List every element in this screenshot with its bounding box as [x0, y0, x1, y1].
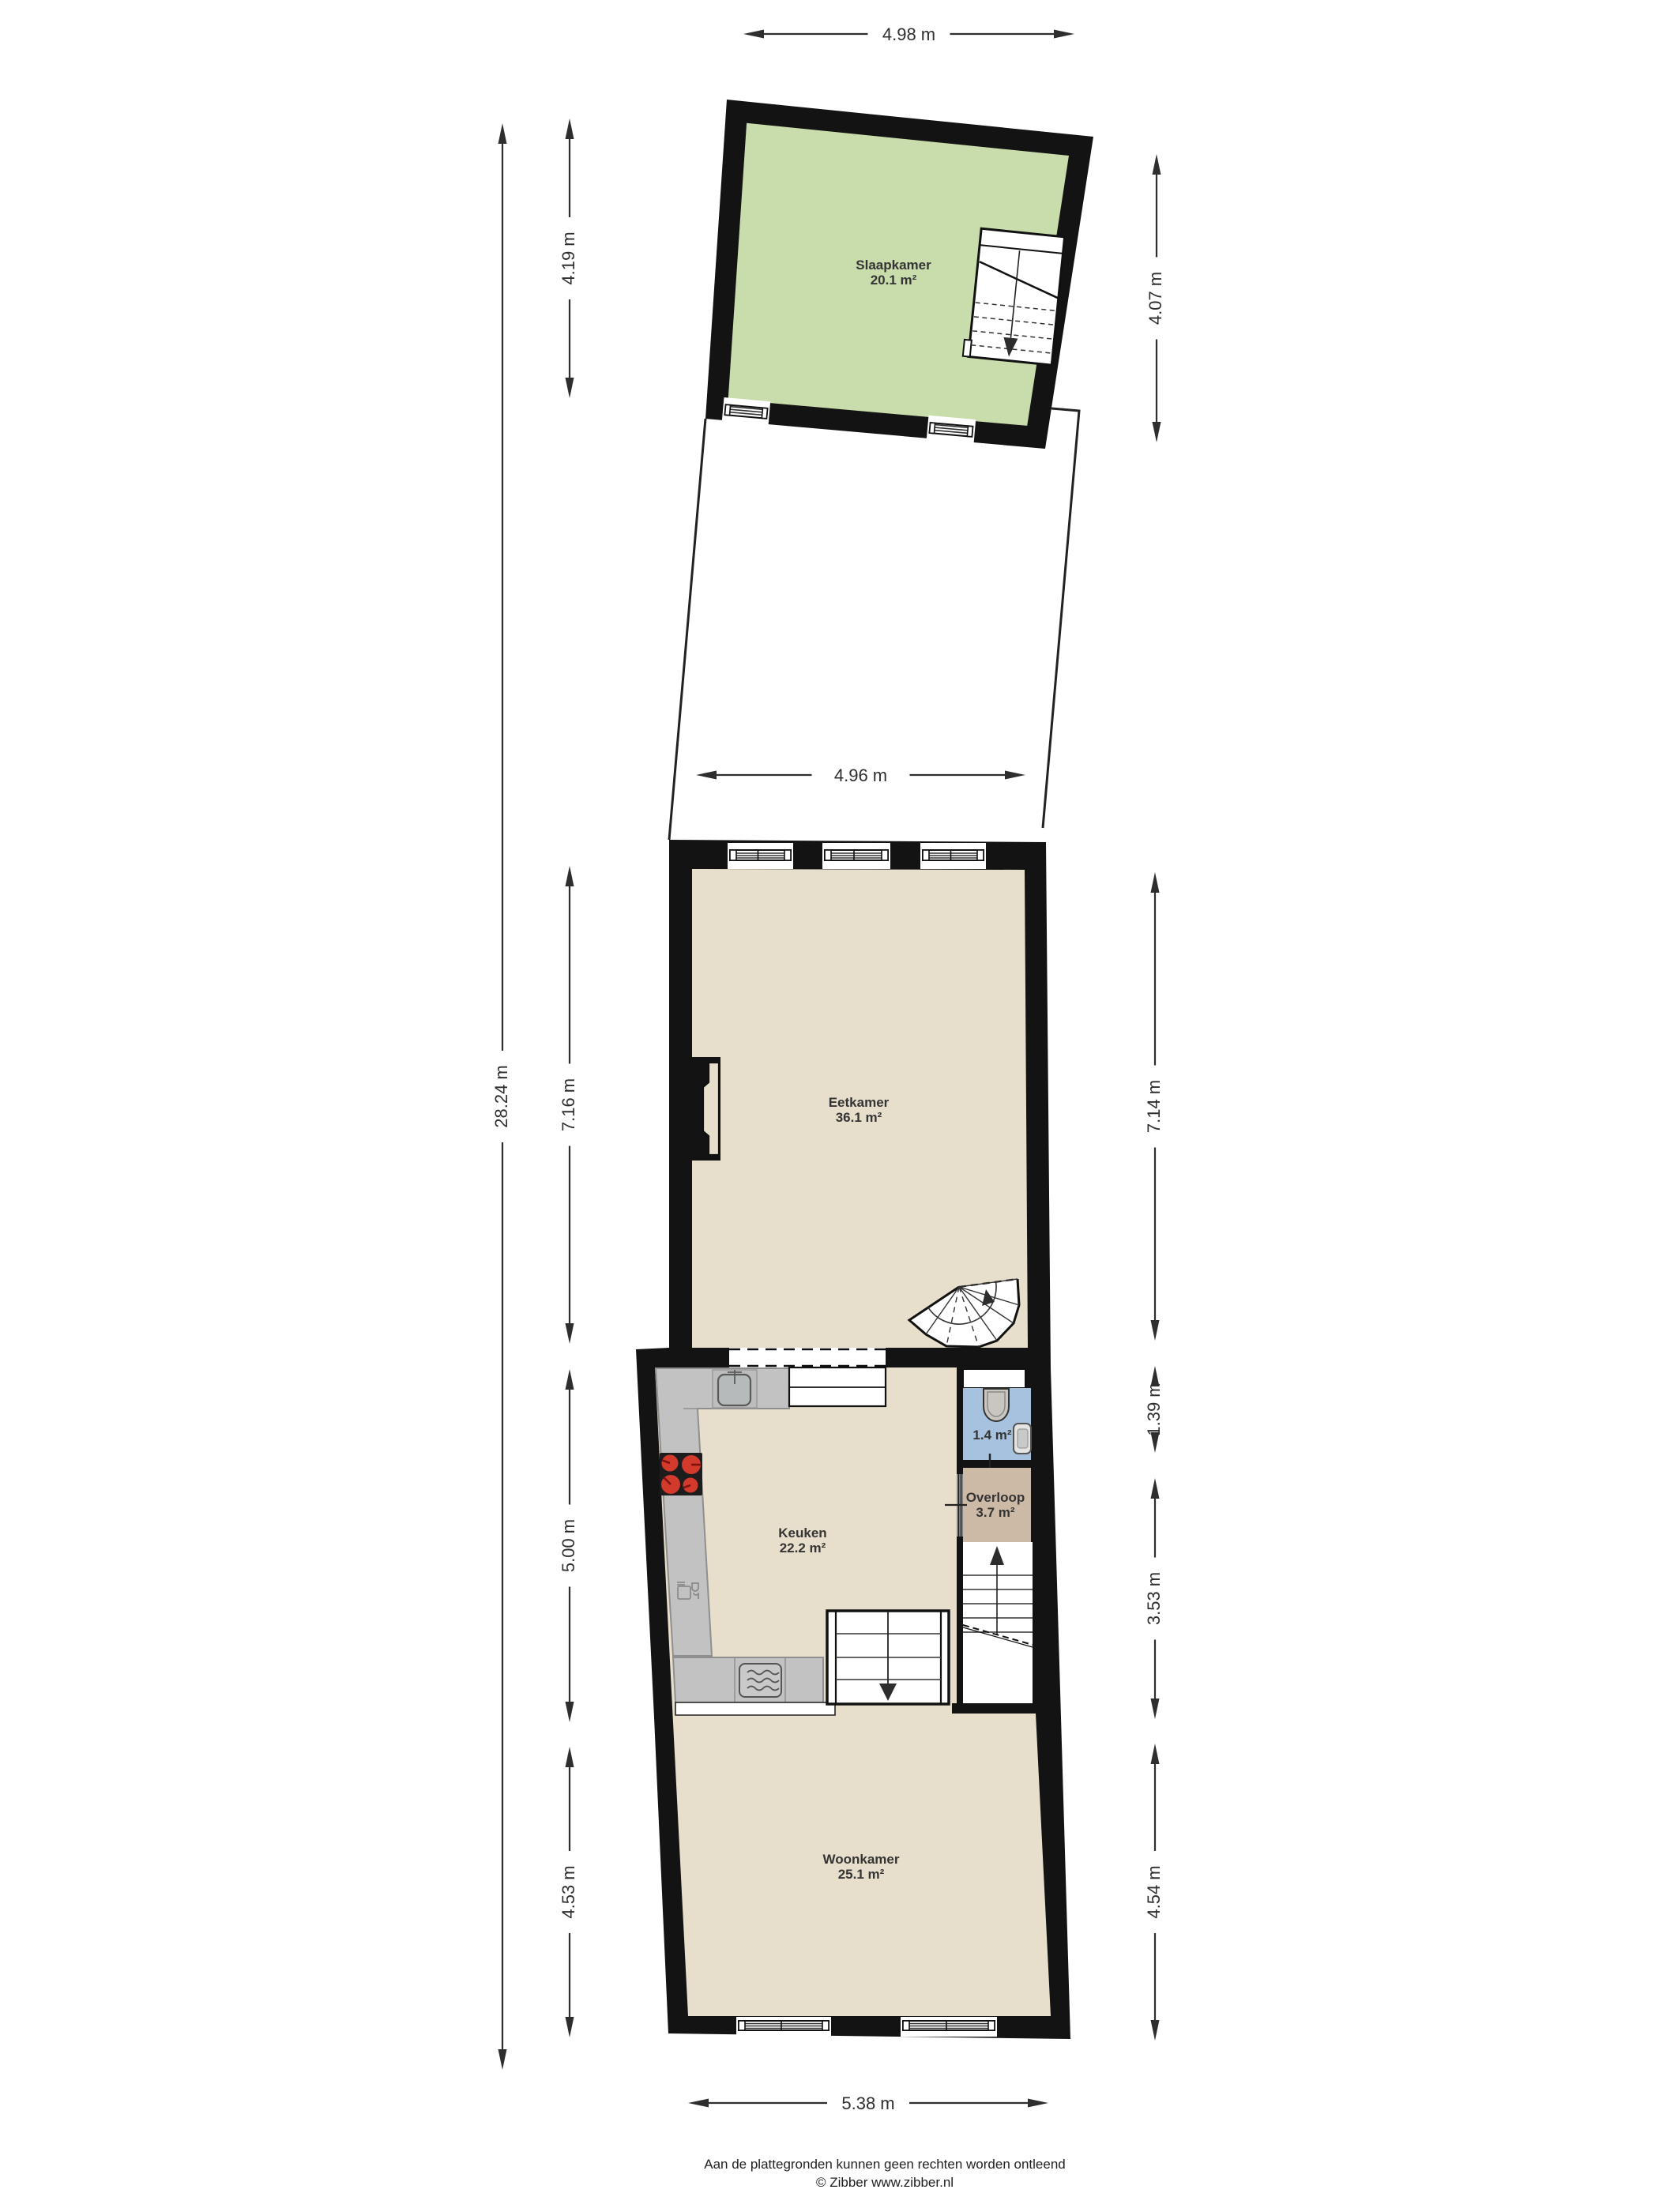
svg-text:4.07 m: 4.07 m [1145, 272, 1165, 325]
svg-text:4.53 m: 4.53 m [559, 1865, 578, 1918]
svg-text:4.96 m: 4.96 m [834, 766, 887, 785]
svg-text:7.16 m: 7.16 m [559, 1078, 578, 1131]
svg-text:22.2 m²: 22.2 m² [780, 1540, 826, 1556]
svg-text:36.1 m²: 36.1 m² [836, 1110, 882, 1125]
svg-text:25.1 m²: 25.1 m² [838, 1867, 885, 1882]
svg-text:1.4 m²: 1.4 m² [972, 1428, 1011, 1443]
svg-text:3.7 m²: 3.7 m² [976, 1505, 1014, 1520]
svg-text:Aan de plattegronden kunnen ge: Aan de plattegronden kunnen geen rechten… [704, 2157, 1065, 2172]
svg-text:20.1 m²: 20.1 m² [871, 273, 917, 288]
svg-text:7.14 m: 7.14 m [1144, 1080, 1164, 1133]
svg-text:3.53 m: 3.53 m [1144, 1572, 1164, 1625]
svg-text:Woonkamer: Woonkamer [823, 1852, 900, 1867]
svg-text:Keuken: Keuken [778, 1525, 826, 1540]
svg-text:© Zibber www.zibber.nl: © Zibber www.zibber.nl [816, 2175, 954, 2190]
svg-text:5.38 m: 5.38 m [841, 2093, 894, 2113]
svg-text:5.00 m: 5.00 m [559, 1519, 578, 1572]
svg-text:4.54 m: 4.54 m [1144, 1865, 1164, 1918]
svg-text:28.24 m: 28.24 m [491, 1065, 511, 1128]
svg-text:Overloop: Overloop [966, 1490, 1025, 1505]
svg-text:Eetkamer: Eetkamer [829, 1095, 890, 1110]
svg-text:1.39 m: 1.39 m [1144, 1382, 1164, 1435]
svg-text:4.98 m: 4.98 m [882, 24, 935, 44]
svg-text:4.19 m: 4.19 m [559, 231, 578, 284]
svg-text:Slaapkamer: Slaapkamer [856, 258, 931, 273]
